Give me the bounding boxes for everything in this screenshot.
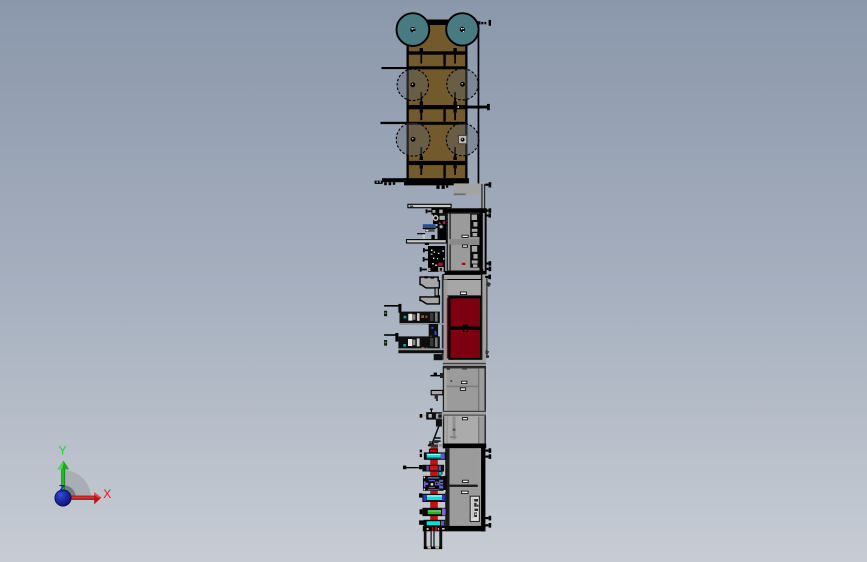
svg-text:X: X bbox=[103, 487, 111, 501]
svg-text:Z: Z bbox=[59, 483, 66, 495]
svg-text:Y: Y bbox=[59, 444, 67, 458]
